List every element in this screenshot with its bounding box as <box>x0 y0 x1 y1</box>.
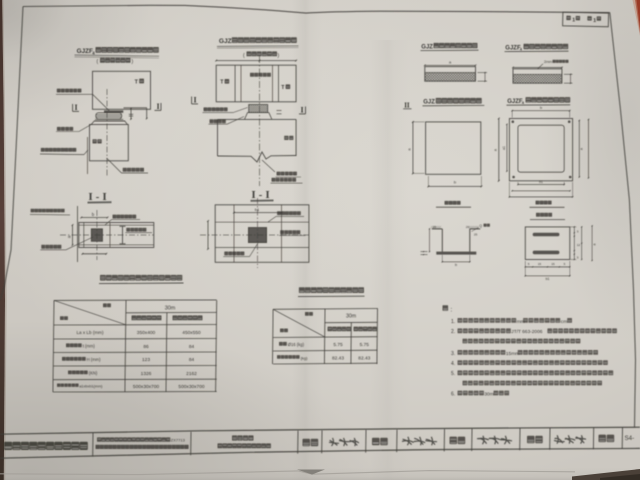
svg-text:I - I: I - I <box>252 190 270 201</box>
svg-text:6.: 6. <box>451 391 455 397</box>
svg-text:I: I <box>301 106 304 115</box>
svg-text:15: 15 <box>551 262 555 266</box>
svg-text:La x Lb (mm): La x Lb (mm) <box>76 330 104 335</box>
svg-text:a: a <box>580 148 584 150</box>
svg-text:86: 86 <box>143 344 149 350</box>
svg-text:(KN): (KN) <box>89 371 98 376</box>
svg-text:82.43: 82.43 <box>332 355 344 361</box>
svg-text:15: 15 <box>538 262 542 266</box>
svg-text:a1xbxb1(mm): a1xbxb1(mm) <box>79 385 103 389</box>
svg-text:1.: 1. <box>451 319 455 325</box>
svg-text:I: I <box>194 96 197 105</box>
svg-text:GJZ: GJZ <box>219 38 232 45</box>
svg-text:S4-: S4- <box>625 435 635 442</box>
svg-text:20: 20 <box>466 225 470 229</box>
svg-text:GJZF: GJZF <box>77 48 93 55</box>
svg-text:5.: 5. <box>451 371 455 377</box>
svg-text:82.43: 82.43 <box>358 355 370 361</box>
svg-text:2162: 2162 <box>186 371 197 377</box>
svg-text:20: 20 <box>433 225 437 229</box>
svg-text:GJZF: GJZF <box>507 99 523 105</box>
svg-text:H (mm): H (mm) <box>87 357 102 362</box>
svg-text:2.: 2. <box>451 329 455 335</box>
svg-text:4.: 4. <box>451 361 455 367</box>
svg-text:t (mm): t (mm) <box>83 344 96 349</box>
svg-text:3.: 3. <box>451 351 455 357</box>
svg-text:(kg): (kg) <box>301 355 309 360</box>
svg-text:1: 1 <box>572 17 575 23</box>
svg-text:b: b <box>455 263 457 267</box>
svg-text:1326: 1326 <box>141 371 152 377</box>
svg-text:30m: 30m <box>165 306 176 312</box>
svg-text:b1: b1 <box>255 207 260 212</box>
svg-text:12: 12 <box>577 243 581 247</box>
svg-text:GJZ: GJZ <box>423 100 435 106</box>
svg-text:b1: b1 <box>546 277 550 281</box>
svg-text:JT/T 663-2006: JT/T 663-2006 <box>511 329 542 335</box>
svg-text:84: 84 <box>189 344 195 350</box>
svg-text:123: 123 <box>142 357 150 363</box>
svg-text:5.75: 5.75 <box>333 342 343 348</box>
svg-text:1: 1 <box>593 18 596 24</box>
svg-text:I: I <box>157 102 160 111</box>
svg-text:350x400: 350x400 <box>137 330 156 336</box>
svg-text:I: I <box>75 103 78 112</box>
svg-text:a1: a1 <box>502 146 506 150</box>
svg-text:2mm: 2mm <box>544 60 552 64</box>
svg-text:a: a <box>592 243 596 245</box>
svg-text:ZX7713: ZX7713 <box>171 438 186 443</box>
svg-text:84: 84 <box>189 357 195 363</box>
svg-text:500x30x700: 500x30x700 <box>178 384 204 390</box>
svg-text:Q: Q <box>479 224 482 228</box>
svg-text:cm: cm <box>561 320 567 325</box>
svg-text:15mm: 15mm <box>506 351 519 357</box>
svg-text:b: b <box>540 106 542 110</box>
svg-text:b1: b1 <box>539 180 543 184</box>
svg-text:Ø16 (kg): Ø16 (kg) <box>288 342 305 347</box>
svg-text:30m: 30m <box>346 314 356 320</box>
svg-text:GJZF: GJZF <box>505 45 521 51</box>
svg-text:25: 25 <box>474 232 478 236</box>
svg-text:500x30x700: 500x30x700 <box>133 384 159 390</box>
svg-text:30m: 30m <box>484 391 493 397</box>
svg-text:I - I: I - I <box>89 192 107 203</box>
svg-text:II: II <box>404 101 410 109</box>
svg-text:450x550: 450x550 <box>182 330 201 336</box>
svg-text:GJZ: GJZ <box>421 45 433 51</box>
svg-text:5.75: 5.75 <box>360 342 370 348</box>
